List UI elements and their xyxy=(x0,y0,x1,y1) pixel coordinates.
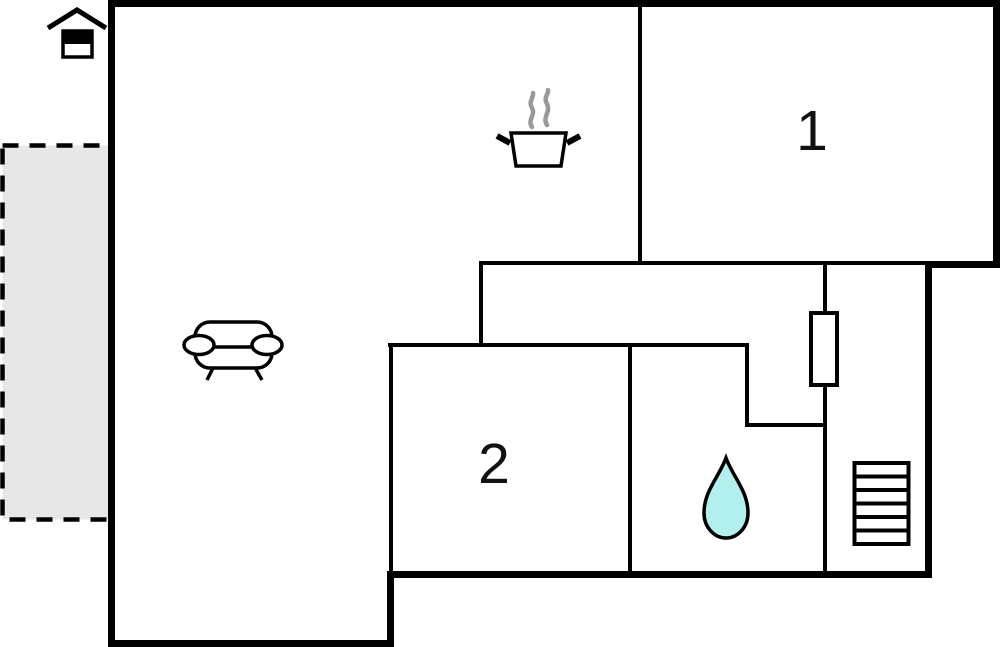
water-drop-icon xyxy=(704,458,748,538)
sofa-arm-right xyxy=(252,336,282,355)
wall-stair-divider xyxy=(823,261,827,572)
door-icon xyxy=(811,313,837,385)
pot-body xyxy=(511,133,566,166)
wall-outer-right-lower xyxy=(925,261,932,578)
wall-outer-step xyxy=(387,571,394,647)
pot-handle-right xyxy=(567,136,580,143)
stairs-icon xyxy=(855,463,909,544)
wall-room2-bath-divider xyxy=(628,343,632,572)
door-leaf xyxy=(811,313,837,385)
floor-plan: 1 2 xyxy=(0,0,1000,647)
floor-plan-canvas xyxy=(0,0,1000,647)
wall-bath-step-horizontal xyxy=(745,423,827,427)
wall-outer-top xyxy=(108,0,1000,7)
terrace xyxy=(3,146,111,520)
wall-room1-bottom xyxy=(479,261,927,265)
wall-outer-bottom-main xyxy=(387,571,932,578)
house-entrance-icon xyxy=(48,10,106,57)
house-roof xyxy=(48,10,106,28)
kitchen-pot-icon xyxy=(497,90,580,166)
sofa-icon xyxy=(184,322,282,380)
room-1-label: 1 xyxy=(796,103,828,160)
steam-icon xyxy=(545,90,548,125)
sofa-arm-left xyxy=(184,336,214,355)
wall-bath-step-vertical xyxy=(745,343,749,427)
house-body-top xyxy=(62,30,93,44)
terrace-area xyxy=(3,146,111,520)
wall-outer-left xyxy=(108,0,115,647)
wall-kitchen-room1-divider xyxy=(638,7,642,265)
wall-outer-right-upper xyxy=(993,0,1000,268)
wall-room2-bath-top xyxy=(388,343,748,347)
water-drop-shape xyxy=(704,458,748,538)
wall-hall-left xyxy=(479,261,483,346)
pot-handle-left xyxy=(497,136,510,143)
wall-outer-notch xyxy=(925,261,1000,268)
room-2-label: 2 xyxy=(478,436,510,493)
wall-outer-bottom-left xyxy=(108,640,394,647)
steam-icon xyxy=(530,93,533,127)
wall-room2-left xyxy=(389,343,393,572)
